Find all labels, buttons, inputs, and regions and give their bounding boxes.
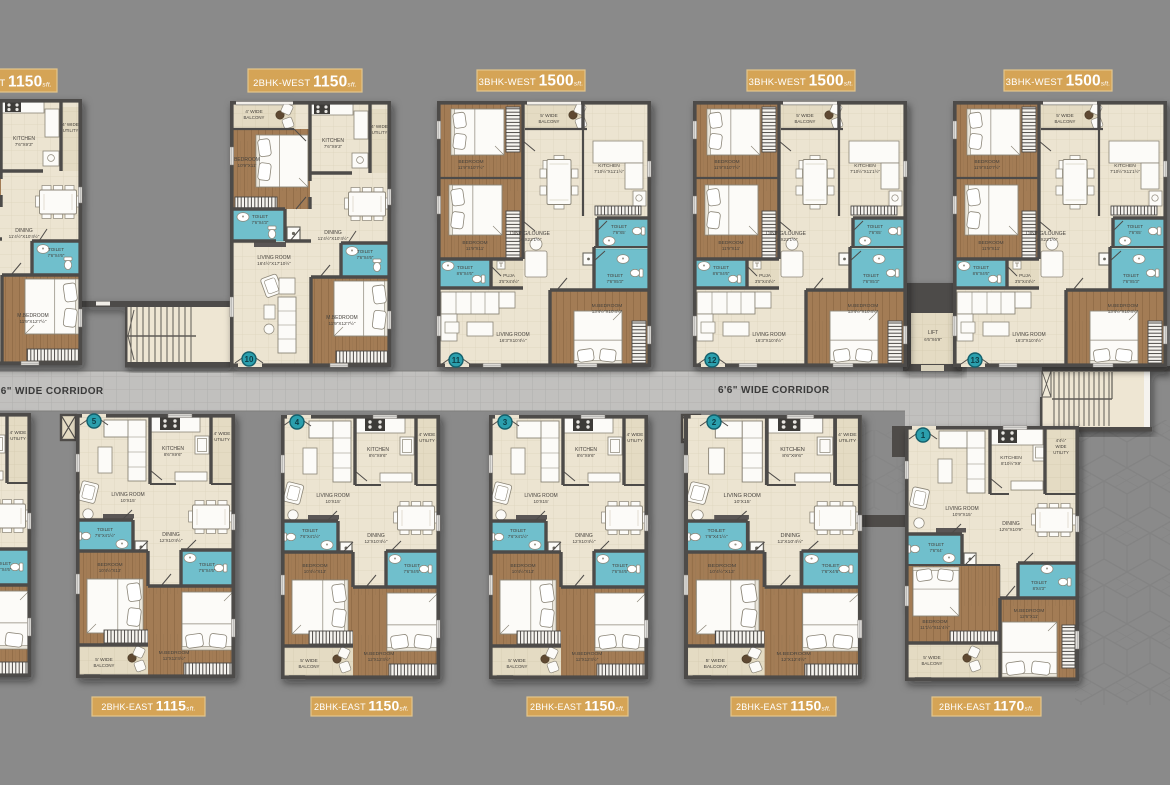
svg-text:4: 4 (295, 418, 300, 427)
svg-text:10: 10 (245, 355, 254, 364)
svg-text:LIFT: LIFT (928, 330, 938, 336)
svg-text:6'6" WIDE CORRIDOR: 6'6" WIDE CORRIDOR (0, 386, 104, 397)
svg-text:6'6" WIDE CORRIDOR: 6'6" WIDE CORRIDOR (718, 385, 830, 396)
svg-text:11: 11 (452, 356, 461, 365)
svg-text:13: 13 (971, 356, 980, 365)
svg-text:6'6"X6'9": 6'6"X6'9" (924, 337, 942, 342)
svg-text:5: 5 (92, 417, 97, 426)
svg-text:3: 3 (503, 418, 508, 427)
svg-text:1: 1 (921, 431, 926, 440)
svg-text:12: 12 (708, 356, 717, 365)
svg-text:2: 2 (712, 418, 717, 427)
